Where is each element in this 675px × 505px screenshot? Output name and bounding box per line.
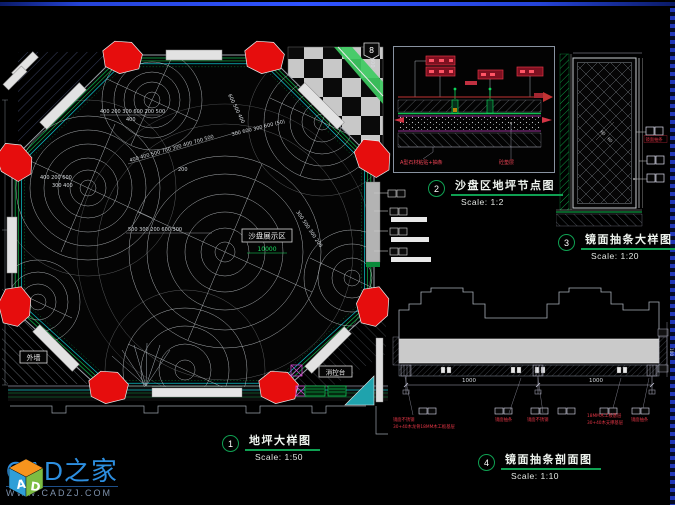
- wall-label: 外墙: [27, 353, 41, 362]
- surface-arrow-box: [534, 93, 543, 98]
- svg-text:300 400: 300 400: [52, 183, 73, 189]
- title-block-2: 2 沙盘区地坪节点图 Scale: 1:2: [428, 177, 563, 207]
- layer-hatch-bottom: [398, 133, 541, 147]
- svg-text:400 200 300 600 200 500: 400 200 300 600 200 500: [100, 109, 165, 115]
- detail2-drawing: A型石材粘贴+抽条 砼垫层: [393, 46, 555, 174]
- cadzj-cube-icon: A D: [6, 457, 46, 499]
- detail3-drawing: 60 60 镜面抽条: [556, 44, 675, 236]
- title-block-3: 3 镜面抽条大样图 Scale: 1:20: [558, 231, 675, 261]
- green-post-2: [487, 100, 493, 113]
- detail2-number-badge: 2: [428, 180, 445, 197]
- layer-hatch-top: [398, 100, 541, 112]
- detail4-number-badge: 4: [478, 454, 495, 471]
- right-cap-box-bottom: [658, 365, 668, 372]
- svg-text:镜面抽条: 镜面抽条: [631, 416, 649, 423]
- detail3-title: 镜面抽条大样图: [581, 231, 675, 250]
- svg-text:镜面不锈钢: 镜面不锈钢: [393, 416, 414, 423]
- edge-column-green: [366, 262, 380, 267]
- index-badge: 8: [369, 46, 374, 55]
- detail3-number-badge: 3: [558, 234, 575, 251]
- console-label-box: 消控台: [319, 366, 352, 377]
- detail4-labels: 镜面不锈钢 30+40木龙骨18MM木工板基层 镜面抽条 镜面不锈钢 18MM木…: [393, 412, 649, 430]
- svg-text:30+40木龙骨18MM木工板基层: 30+40木龙骨18MM木工板基层: [393, 423, 455, 430]
- detail2-title: 沙盘区地坪节点图: [451, 177, 563, 196]
- detail4-title: 镜面抽条剖面图: [501, 451, 601, 470]
- cad-canvas: 8: [0, 0, 675, 505]
- leader-dot: [510, 122, 512, 124]
- svg-text:1000: 1000: [589, 378, 603, 384]
- wall-label-box: 外墙: [20, 351, 47, 363]
- svg-text:1000: 1000: [462, 378, 476, 384]
- window-top-border: [0, 2, 675, 6]
- detail2-label-left: A型石材粘贴+抽条: [400, 159, 443, 166]
- step-outline: [399, 288, 659, 339]
- svg-text:400 200 600: 400 200 600: [40, 175, 72, 181]
- detail4-drawing: 1000 1000 镜面不锈钢 30+40木龙骨18MM木工板基层 镜面抽条 镜…: [391, 282, 675, 434]
- svg-text:600: 600: [369, 58, 375, 68]
- mirror-band: [399, 339, 659, 363]
- svg-text:500 300 200 600 300: 500 300 200 600 300: [128, 227, 182, 233]
- detail4-dim: 1000 1000: [404, 378, 654, 387]
- left-cap: [393, 337, 399, 365]
- detail3-red-label: 镜面抽条: [646, 136, 664, 143]
- svg-text:18MM木工板基层: 18MM木工板基层: [587, 412, 622, 419]
- svg-text:100: 100: [669, 348, 674, 356]
- svg-text:400: 400: [126, 117, 136, 123]
- joint-filler: [453, 108, 457, 112]
- area-label-box: 沙盘展示区: [242, 229, 292, 242]
- svg-text:镜面不锈钢: 镜面不锈钢: [527, 416, 548, 423]
- detail2-scale: Scale: 1:2: [451, 197, 563, 207]
- detail1-number-badge: 1: [222, 435, 239, 452]
- svg-text:30+40木支撑基层: 30+40木支撑基层: [587, 419, 624, 426]
- area-dim: 10000: [257, 246, 276, 253]
- layer-concrete: [398, 116, 541, 131]
- white-corner-bar: [376, 338, 383, 402]
- cadzj-logo[interactable]: A D CAD之家 WWW.CADZJ.COM: [6, 458, 118, 498]
- console-label: 消控台: [326, 368, 346, 377]
- plan-drawing: 8: [0, 40, 450, 452]
- svg-text:D: D: [30, 479, 42, 494]
- detail3-callouts: 镜面抽条: [633, 127, 667, 182]
- right-cap: [659, 337, 667, 365]
- detail1-scale: Scale: 1:50: [245, 452, 320, 462]
- area-label: 沙盘展示区: [248, 231, 286, 241]
- detail1-title: 地坪大样图: [245, 432, 320, 451]
- right-cap-box-top: [658, 329, 668, 336]
- title-block-1: 1 地坪大样图 Scale: 1:50: [222, 432, 320, 462]
- title-block-4: 4 镜面抽条剖面图 Scale: 1:10: [478, 451, 601, 481]
- base-hatch: [556, 214, 642, 226]
- material-callouts: [374, 190, 431, 262]
- detail3-scale: Scale: 1:20: [581, 251, 675, 261]
- svg-text:镜面抽条: 镜面抽条: [495, 416, 513, 423]
- edge-column: [366, 182, 380, 262]
- svg-text:200: 200: [178, 167, 188, 173]
- detail4-scale: Scale: 1:10: [501, 471, 601, 481]
- detail2-label-right: 砼垫层: [499, 159, 514, 166]
